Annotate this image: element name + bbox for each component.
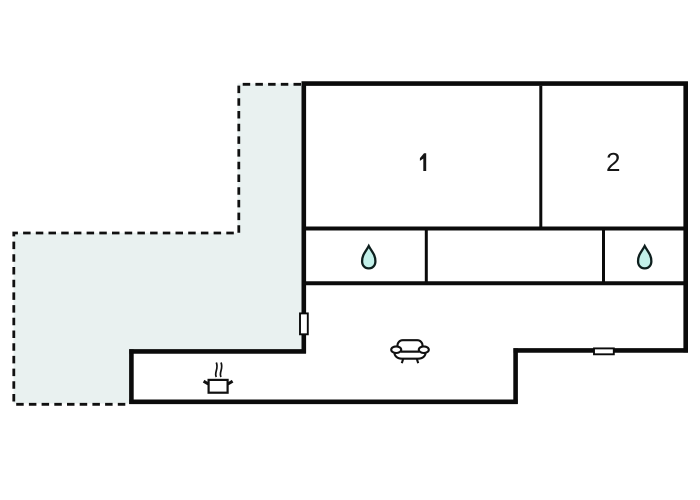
svg-text:2: 2 xyxy=(606,147,620,177)
